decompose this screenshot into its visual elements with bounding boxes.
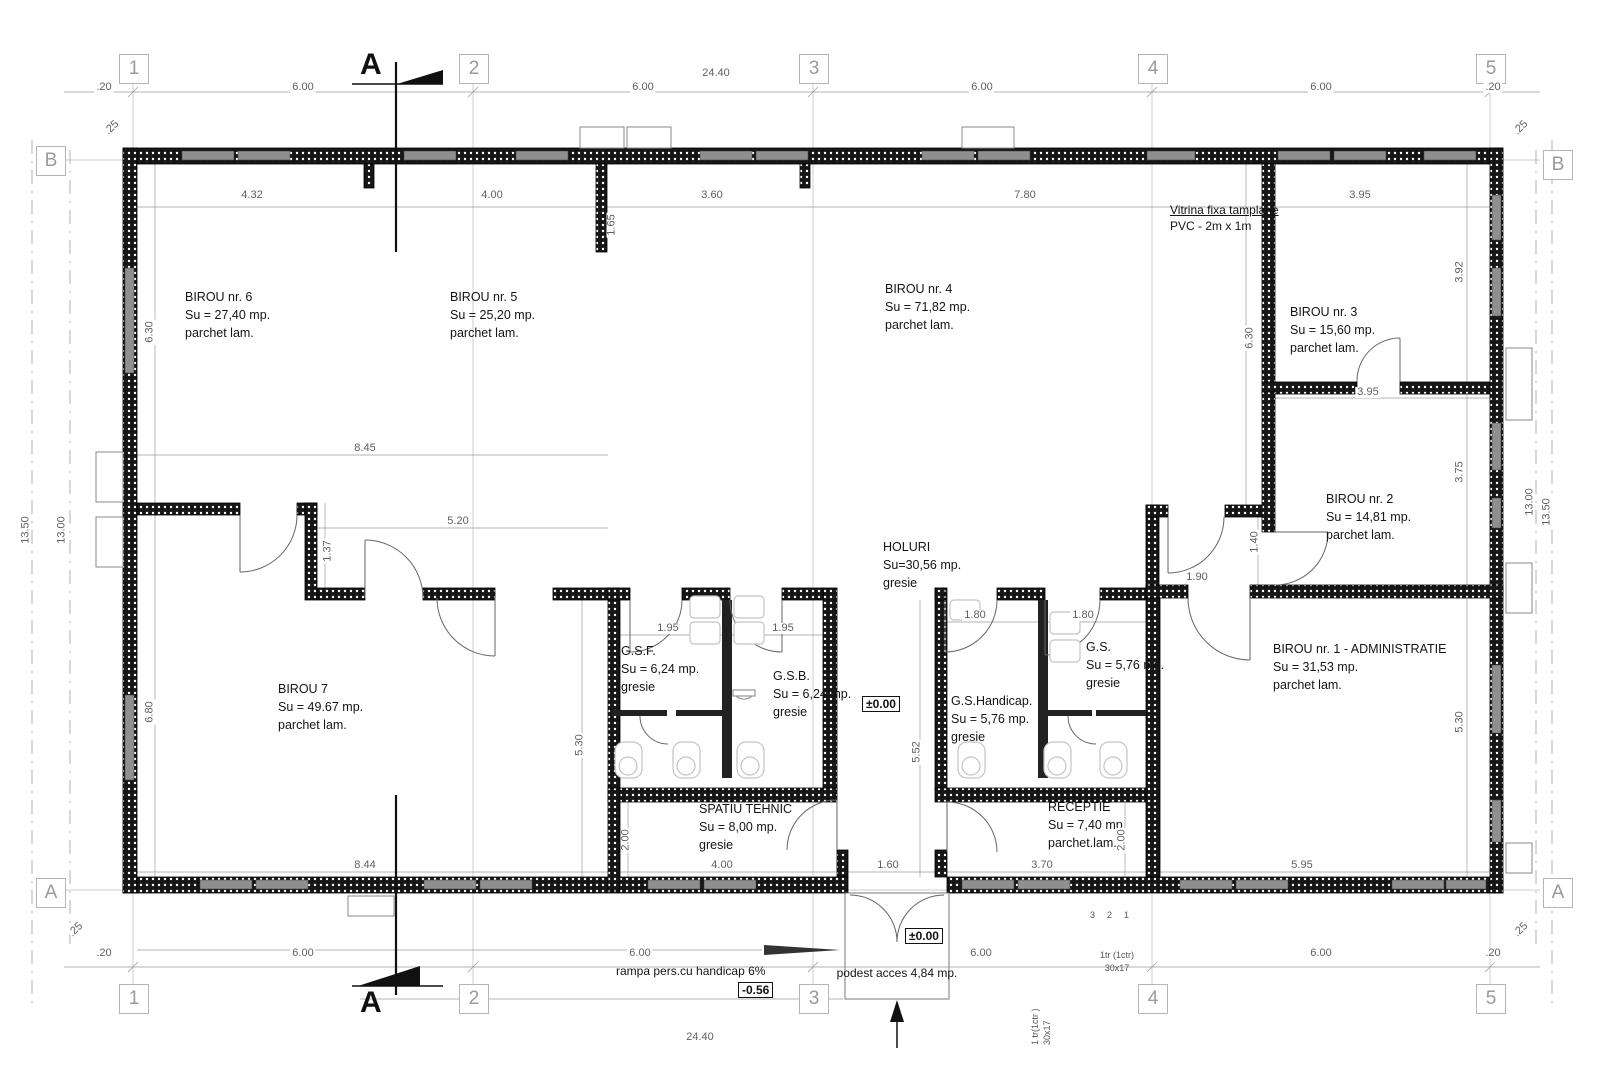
section-letter-top: A — [360, 50, 382, 80]
room-birou-6: BIROU nr. 6 Su = 27,40 mp. parchet lam. — [185, 288, 270, 342]
room-birou-3: BIROU nr. 3 Su = 15,60 mp. parchet lam. — [1290, 303, 1375, 357]
room-birou-2: BIROU nr. 2 Su = 14,81 mp. parchet lam. — [1326, 490, 1411, 544]
room-finish: gresie — [883, 574, 961, 592]
room-area: Su=30,56 mp. — [883, 556, 961, 574]
dim-span-1-2-top: 6.00 — [290, 82, 315, 93]
dim-margin-bottom-left: .20 — [94, 948, 113, 959]
dim-bottom-844: 8.44 — [352, 860, 377, 871]
room-holuri: HOLURI Su=30,56 mp. gresie — [883, 538, 961, 592]
grid-lines — [64, 83, 1540, 984]
stair-note-vertical-1: 1 tr(1ctr ) — [1030, 1008, 1040, 1045]
room-gs: G.S. Su = 5,76 mp. gresie — [1086, 638, 1164, 692]
room-birou-4: BIROU nr. 4 Su = 71,82 mp. parchet lam. — [885, 280, 970, 334]
dim-total-bottom: 24.40 — [684, 1032, 716, 1043]
entrance-arrow — [890, 1000, 904, 1048]
dim-mid-520: 5.20 — [445, 516, 470, 527]
room-finish: parchet lam. — [185, 324, 270, 342]
level-zero-interior: ±0.00 — [862, 696, 900, 712]
room-finish: parchet lam. — [1290, 339, 1375, 357]
grid-col-5-bottom: 5 — [1476, 984, 1506, 1014]
dim-mid-845: 8.45 — [352, 443, 377, 454]
dim-vert-530: 5.30 — [575, 732, 586, 757]
dim-mid-137: 1.37 — [323, 538, 334, 563]
podest-outline — [845, 893, 949, 999]
grid-col-2-top: 2 — [459, 54, 489, 84]
dim-rec-200: 2.00 — [1117, 827, 1128, 852]
door-arcs — [240, 338, 1400, 942]
dim-vert-552: 5.52 — [912, 739, 923, 764]
room-area: Su = 25,20 mp. — [450, 306, 535, 324]
step-3: 3 — [1090, 910, 1095, 920]
dim-total-top: 24.40 — [700, 68, 732, 79]
room-area: Su = 71,82 mp. — [885, 298, 970, 316]
dim-span-4-5-top: 6.00 — [1308, 82, 1333, 93]
room-finish: gresie — [699, 836, 792, 854]
room-finish: parchet.lam. — [1048, 834, 1126, 852]
room-birou-5: BIROU nr. 5 Su = 25,20 mp. parchet lam. — [450, 288, 535, 342]
dim-bottom-370: 3.70 — [1029, 860, 1054, 871]
grid-col-1-bottom: 1 — [119, 984, 149, 1014]
dim-gsb-195: 1.95 — [770, 623, 795, 634]
room-name: RECEPTIE — [1048, 798, 1126, 816]
section-letter-bottom: A — [360, 988, 382, 1018]
boundary-dashed-lines — [32, 140, 1552, 1005]
room-area: Su = 14,81 mp. — [1326, 508, 1411, 526]
room-name: BIROU nr. 1 - ADMINISTRATIE — [1273, 640, 1446, 658]
room-finish: parchet lam. — [1326, 526, 1411, 544]
grid-row-b-left: B — [36, 146, 66, 176]
room-name: HOLURI — [883, 538, 961, 556]
room-birou-1-administratie: BIROU nr. 1 - ADMINISTRATIE Su = 31,53 m… — [1273, 640, 1446, 694]
room-area: Su = 6,24 mp. — [773, 685, 851, 703]
section-marks — [352, 62, 443, 995]
level-zero-entrance: ±0.00 — [905, 928, 943, 944]
room-area: Su = 27,40 mp. — [185, 306, 270, 324]
grid-col-3-bottom: 3 — [799, 984, 829, 1014]
stair-note-2: 30x17 — [1105, 963, 1130, 973]
dim-gsh-180: 1.80 — [962, 610, 987, 621]
dim-right-1300: 13.00 — [1525, 486, 1536, 518]
floor-plan: 1 2 3 4 5 1 2 3 4 5 B B A A A A BIROU nr… — [0, 0, 1600, 1074]
dim-span-1-2-bottom: 6.00 — [290, 948, 315, 959]
room-name: G.S.B. — [773, 667, 851, 685]
dim-right-1350: 13.50 — [1542, 496, 1553, 528]
dim-span-4-5-bottom: 6.00 — [1308, 948, 1333, 959]
room-finish: parchet lam. — [1273, 676, 1446, 694]
dim-wall-395: 3.95 — [1347, 190, 1372, 201]
room-name: G.S.F. — [621, 642, 699, 660]
dim-hol-140: 1.40 — [1250, 529, 1261, 554]
dim-wall-780: 7.80 — [1012, 190, 1037, 201]
dim-span-2-3-bottom: 6.00 — [627, 948, 652, 959]
dim-margin-top-left: .20 — [94, 82, 113, 93]
ramp-arrow — [764, 945, 840, 955]
room-finish: parchet lam. — [450, 324, 535, 342]
ramp-note: rampa pers.cu handicap 6% — [616, 963, 765, 979]
dim-hol-190: 1.90 — [1184, 572, 1209, 583]
grid-col-4-bottom: 4 — [1138, 984, 1168, 1014]
stair-note-vertical-2: 30x17 — [1042, 1020, 1052, 1045]
grid-row-b-right: B — [1543, 150, 1573, 180]
grid-row-a-right: A — [1543, 878, 1573, 908]
dim-margin-bottom-right: .20 — [1483, 948, 1502, 959]
dim-left-1350: 13.50 — [21, 514, 32, 546]
room-name: G.S. — [1086, 638, 1164, 656]
dim-left-630: 6.30 — [145, 319, 156, 344]
step-1: 1 — [1124, 910, 1129, 920]
dim-span-3-4-top: 6.00 — [969, 82, 994, 93]
dim-wall-165: 1.65 — [607, 212, 618, 237]
room-name: G.S.Handicap. — [951, 692, 1032, 710]
room-birou-7: BIROU 7 Su = 49.67 mp. parchet lam. — [278, 680, 363, 734]
dim-bottom-595: 5.95 — [1289, 860, 1314, 871]
room-name: BIROU nr. 4 — [885, 280, 970, 298]
dim-bottom-160: 1.60 — [875, 860, 900, 871]
room-name: BIROU nr. 6 — [185, 288, 270, 306]
room-name: SPATIU TEHNIC — [699, 800, 792, 818]
dim-right-530: 5.30 — [1455, 709, 1466, 734]
vitrina-note-line1: Vitrina fixa tamplarie — [1170, 202, 1279, 218]
dim-st-200: 2.00 — [621, 827, 632, 852]
step-2: 2 — [1107, 910, 1112, 920]
room-area: Su = 7,40 mp. — [1048, 816, 1126, 834]
grid-col-5-top: 5 — [1476, 54, 1506, 84]
dim-birou3-width: 3.95 — [1355, 387, 1380, 398]
dim-gsf-195: 1.95 — [655, 623, 680, 634]
grid-col-2-bottom: 2 — [459, 984, 489, 1014]
dim-left-1300: 13.00 — [57, 514, 68, 546]
grid-row-a-left: A — [36, 878, 66, 908]
room-gs-handicap: G.S.Handicap. Su = 5,76 mp. gresie — [951, 692, 1032, 746]
room-receptie: RECEPTIE Su = 7,40 mp. parchet.lam. — [1048, 798, 1126, 852]
room-area: Su = 15,60 mp. — [1290, 321, 1375, 339]
grid-col-4-top: 4 — [1138, 54, 1168, 84]
room-area: Su = 6,24 mp. — [621, 660, 699, 678]
room-name: BIROU nr. 5 — [450, 288, 535, 306]
level-minus-056: -0.56 — [738, 982, 773, 998]
dim-birou4-630: 6.30 — [1245, 325, 1256, 350]
dim-wall-400: 4.00 — [479, 190, 504, 201]
dim-left-680: 6.80 — [145, 699, 156, 724]
room-gsb: G.S.B. Su = 6,24 mp. gresie — [773, 667, 851, 721]
vitrina-note: Vitrina fixa tamplarie PVC - 2m x 1m — [1170, 202, 1279, 234]
room-finish: gresie — [773, 703, 851, 721]
podest-note: podest acces 4,84 mp. — [837, 965, 958, 981]
room-area: Su = 5,76 mp. — [951, 710, 1032, 728]
room-area: Su = 5,76 mp. — [1086, 656, 1164, 674]
room-name: BIROU 7 — [278, 680, 363, 698]
room-area: Su = 49.67 mp. — [278, 698, 363, 716]
room-name: BIROU nr. 3 — [1290, 303, 1375, 321]
dim-span-3-4-bottom: 6.00 — [968, 948, 993, 959]
vitrina-note-line2: PVC - 2m x 1m — [1170, 218, 1279, 234]
grid-col-1-top: 1 — [119, 54, 149, 84]
room-area: Su = 31,53 mp. — [1273, 658, 1446, 676]
dim-bottom-400: 4.00 — [709, 860, 734, 871]
dimension-lines — [64, 87, 1540, 999]
room-name: BIROU nr. 2 — [1326, 490, 1411, 508]
room-finish: parchet lam. — [885, 316, 970, 334]
room-finish: gresie — [951, 728, 1032, 746]
dim-right-375: 3.75 — [1455, 459, 1466, 484]
dim-gs-180: 1.80 — [1070, 610, 1095, 621]
room-spatiu-tehnic: SPATIU TEHNIC Su = 8,00 mp. gresie — [699, 800, 792, 854]
room-finish: parchet lam. — [278, 716, 363, 734]
dim-wall-432: 4.32 — [239, 190, 264, 201]
dim-span-2-3-top: 6.00 — [630, 82, 655, 93]
room-gsf: G.S.F. Su = 6,24 mp. gresie — [621, 642, 699, 696]
dim-margin-top-right: .20 — [1483, 82, 1502, 93]
room-finish: gresie — [621, 678, 699, 696]
grid-col-3-top: 3 — [799, 54, 829, 84]
dim-right-392: 3.92 — [1455, 259, 1466, 284]
dim-wall-360: 3.60 — [699, 190, 724, 201]
room-area: Su = 8,00 mp. — [699, 818, 792, 836]
stair-note-1: 1tr (1ctr) — [1100, 950, 1134, 960]
room-finish: gresie — [1086, 674, 1164, 692]
